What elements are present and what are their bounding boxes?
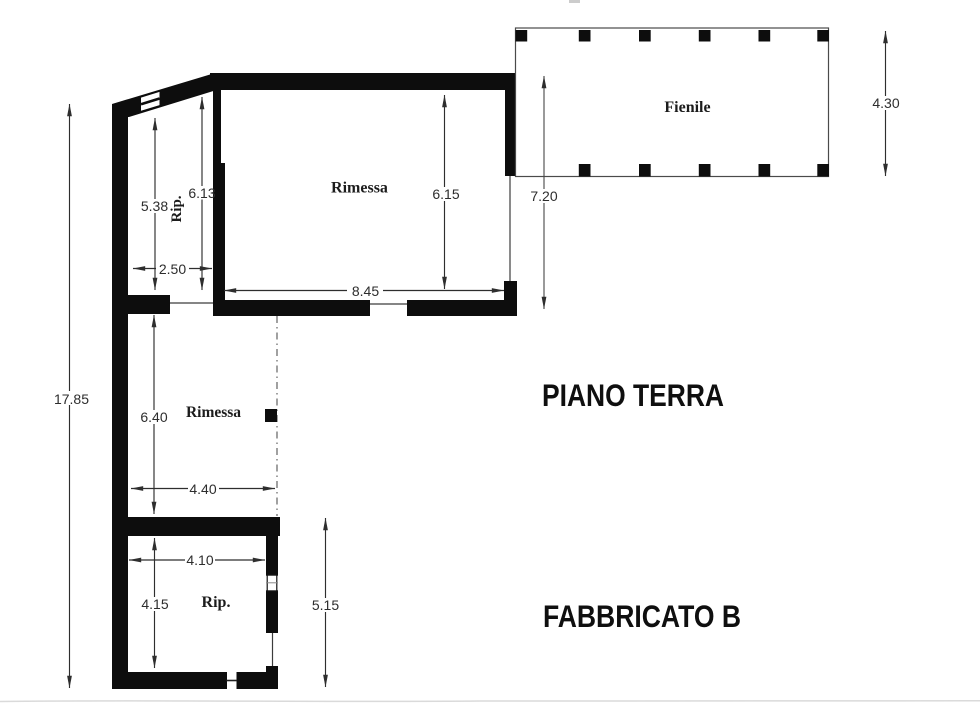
svg-text:Rip.: Rip. [169,195,185,222]
svg-text:4.30: 4.30 [872,95,899,111]
svg-text:FABBRICATO B: FABBRICATO B [543,598,741,634]
svg-text:7.20: 7.20 [530,188,557,204]
svg-text:Rimessa: Rimessa [186,404,241,421]
svg-text:Rimessa: Rimessa [331,180,388,197]
svg-text:8.45: 8.45 [352,283,379,299]
svg-text:6.40: 6.40 [140,409,167,425]
svg-text:5.38: 5.38 [141,198,168,214]
svg-text:4.40: 4.40 [189,481,216,497]
svg-text:PIANO TERRA: PIANO TERRA [542,377,724,413]
svg-text:Rip.: Rip. [202,594,231,611]
svg-text:Fienile: Fienile [664,99,710,116]
svg-text:6.15: 6.15 [432,186,459,202]
svg-text:17.85: 17.85 [54,391,89,407]
svg-text:5.15: 5.15 [312,597,339,613]
svg-text:6.13: 6.13 [188,185,215,201]
svg-text:4.15: 4.15 [141,596,168,612]
svg-text:2.50: 2.50 [159,261,186,277]
svg-text:4.10: 4.10 [186,552,213,568]
